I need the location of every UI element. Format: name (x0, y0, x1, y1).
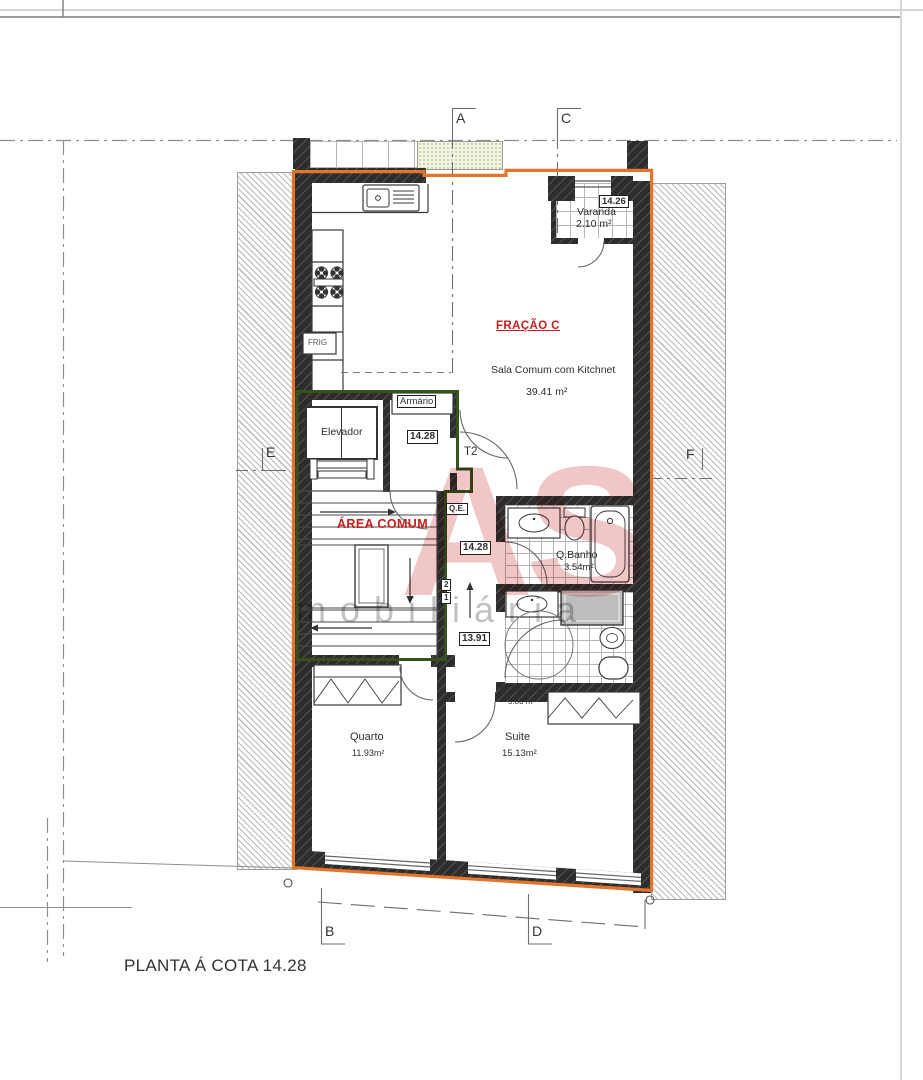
shower-tray-icon (561, 590, 623, 625)
bedroom-area-label: 11.93m² (352, 748, 384, 758)
bathroom2-label: Q.Banho (500, 684, 539, 695)
grid-marker-d: D (532, 923, 542, 939)
typology-label: T2 (464, 446, 477, 458)
electrical-panel-label: Q.E. (446, 503, 468, 515)
lower-level-badge: 13.91 (459, 632, 490, 646)
bedroom-label: Quarto (350, 731, 384, 743)
grid-marker-f: F (686, 446, 695, 462)
site-boundary-lines (0, 0, 923, 1080)
varanda-area-label: 2.10 m² (576, 218, 612, 230)
bathroom1-label: Q.Banho (556, 549, 597, 561)
common-area-label: ÁREA COMUM (337, 517, 428, 531)
living-room-label: Sala Comum com Kitchnet (491, 364, 615, 376)
bathroom2-area-label: 5.83 m² (508, 697, 535, 706)
suite-area-label: 15.13m² (502, 748, 537, 759)
elevator-icon (306, 407, 377, 479)
step-2-badge: 2 (441, 579, 451, 591)
step-1-badge: 1 (441, 592, 451, 604)
drawing-title: PLANTA Á COTA 14.28 (124, 956, 307, 976)
varanda-label: Varanda (577, 206, 616, 218)
closet-label: Armário (397, 395, 436, 408)
elevator-label: Elevador (321, 426, 362, 438)
grid-marker-c: C (561, 110, 571, 126)
suite-label: Suite (505, 731, 530, 743)
living-room-area-label: 39.41 m² (526, 386, 567, 398)
toilet-icon (599, 657, 628, 679)
grid-marker-a: A (456, 110, 465, 126)
kitchen-sink-icon (363, 185, 419, 211)
bathroom1-area-label: 3.54m² (564, 562, 594, 573)
bathroom2-fixtures (505, 590, 628, 679)
floorplan-drawing (0, 0, 923, 1080)
grid-marker-e: E (266, 444, 275, 460)
hall-level-badge: 14.28 (407, 430, 438, 444)
floor-plan-page: { "labels": { "frig": "FRIG", "fracao": … (0, 0, 923, 1080)
suite-wardrobe-icon (548, 692, 640, 724)
fridge-label: FRIG (308, 338, 327, 347)
quarto-wardrobe-icon (314, 665, 401, 705)
landing-level-badge: 14.28 (460, 541, 491, 555)
grid-marker-b: B (325, 923, 334, 939)
fraction-title: FRAÇÃO C (496, 320, 560, 332)
